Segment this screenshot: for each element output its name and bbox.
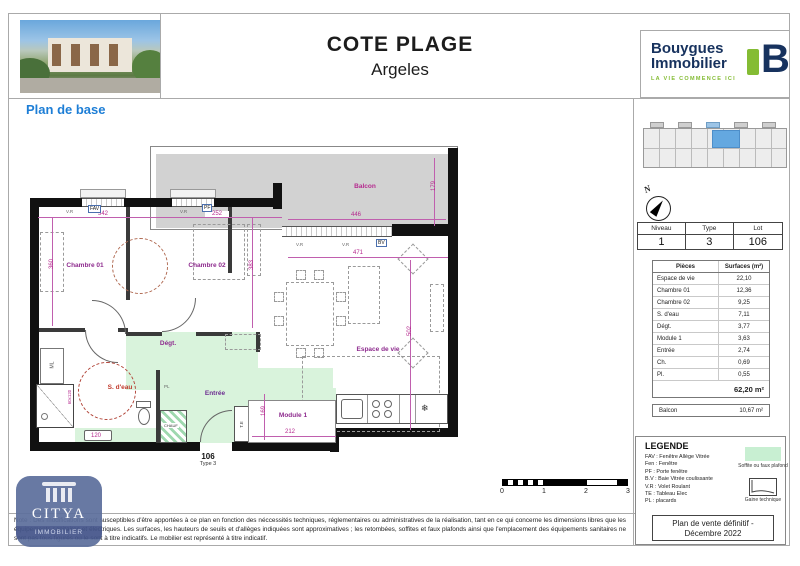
pf-tag: PF <box>202 204 212 212</box>
room-label-entree: Entrée <box>196 390 234 397</box>
table-row: Pl.0,55 <box>653 369 769 381</box>
column-bar <box>53 488 57 502</box>
unit-info-table: Niveau Type Lot 1 3 106 <box>637 222 783 250</box>
fav-tag: FAV <box>88 205 101 213</box>
cell-name: Entrée <box>653 345 719 356</box>
dim-360: 360 <box>49 254 55 274</box>
balcon-surface-row: Balcon 10,67 m² <box>652 404 770 417</box>
surfaces-table: Pièces Surfaces (m²) Espace de vie22,10 … <box>652 260 770 398</box>
bv-tag: BV <box>376 239 387 247</box>
dim-446: 446 <box>343 212 369 218</box>
dimline-212 <box>252 436 336 437</box>
chauf-label: CHAUF <box>163 423 179 428</box>
watermark-name: CITYA <box>16 506 102 523</box>
partition-bath-top-a <box>39 328 85 332</box>
project-photo <box>20 20 160 93</box>
dim-120: 120 <box>86 433 106 439</box>
furniture-bed-ch02 <box>193 224 245 280</box>
dimline-446 <box>288 219 446 220</box>
overview-balcony-bump <box>650 122 664 128</box>
lot-type: Type 3 <box>192 461 224 467</box>
value-niveau: 1 <box>638 235 686 250</box>
wall-bottom-mid <box>232 442 336 451</box>
furniture-chair <box>296 270 306 280</box>
col-niveau: Niveau <box>638 223 686 235</box>
dim-179: 179 <box>431 176 437 196</box>
scale-seg-dashed <box>503 480 545 485</box>
furniture-chair <box>336 316 346 326</box>
dim-shower: 60x120 <box>67 383 73 411</box>
surfaces-total: 62,20 m² <box>653 381 769 397</box>
column-bar <box>68 488 72 502</box>
column-bar <box>46 488 50 502</box>
citya-column-capital <box>42 482 76 486</box>
dim-502: 502 <box>407 321 413 341</box>
window-bv-bay <box>282 226 392 237</box>
surfaces-header-row: Pièces Surfaces (m²) <box>653 261 769 273</box>
legend-box: LEGENDE FAV : Fenêtre Allège Vitrée Fen … <box>635 436 786 545</box>
dim-471: 471 <box>345 250 371 256</box>
table-row: Chambre 0112,36 <box>653 285 769 297</box>
cell-name: Chambre 02 <box>653 297 719 308</box>
brand-bmark-green-bar <box>747 49 759 75</box>
stamp-line2: Décembre 2022 <box>653 529 773 539</box>
value-lot: 106 <box>733 235 782 250</box>
cell-value: 0,69 <box>719 360 769 366</box>
brand-line1: Bouygues <box>651 41 736 56</box>
footer-note: Note : Des modifications sont susceptibl… <box>14 516 626 543</box>
room-label-sdeau: S. d'eau <box>98 384 142 391</box>
furniture-chair <box>314 270 324 280</box>
col-type: Type <box>685 223 733 235</box>
plan-de-vente-page: COTE PLAGE Argeles Bouygues Immobilier L… <box>0 0 800 566</box>
value-type: 3 <box>685 235 733 250</box>
overview-balcony-bump <box>734 122 748 128</box>
brand-bmark: B <box>747 39 790 79</box>
table-row: Module 13,63 <box>653 333 769 345</box>
cell-name: Pl. <box>653 369 719 380</box>
kitchen-counter: ❄ <box>336 394 448 424</box>
legend-item: PL : placards <box>645 498 713 505</box>
legend-items: FAV : Fenêtre Allège Vitrée Fen : Fenêtr… <box>645 454 713 506</box>
furniture-placard-entree <box>225 334 261 350</box>
balcon-label: Balcon <box>659 408 677 414</box>
overview-balcony-bump <box>678 122 692 128</box>
dimline-502 <box>410 260 411 430</box>
column-bar <box>61 488 65 502</box>
furniture-sideboard <box>430 284 444 332</box>
table-row: Dégt.3,77 <box>653 321 769 333</box>
scale-bar <box>502 479 628 486</box>
watermark-subtitle: IMMOBILIER <box>16 526 102 539</box>
lot-number: 106 <box>192 452 224 461</box>
brand-wordmark: Bouygues Immobilier LA VIE COMMENCE ICI <box>651 41 736 82</box>
room-label-chambre02: Chambre 02 <box>185 262 229 269</box>
cell-value: 12,36 <box>719 288 769 294</box>
scale-tick: 2 <box>581 488 591 495</box>
photo-building-windows <box>52 44 128 66</box>
vr-tag: V.R <box>180 209 187 214</box>
scale-tick: 1 <box>539 488 549 495</box>
legend-item: B.V : Baie Vitrée coulissante <box>645 476 713 483</box>
balcon-value: 10,67 m² <box>739 408 763 414</box>
col-lot: Lot <box>733 223 782 235</box>
legend-soffite-caption: Soffite ou faux plafond <box>737 464 789 470</box>
legend-item: TE : Tableau Elec <box>645 491 713 498</box>
furniture-chair <box>336 292 346 302</box>
electrical-panel-label: T.E <box>239 421 244 428</box>
accessibility-circle <box>78 362 136 420</box>
furniture-chair <box>274 316 284 326</box>
room-label-balcon: Balcon <box>343 183 387 190</box>
cell-value: 2,74 <box>719 348 769 354</box>
cell-value: 0,55 <box>719 372 769 378</box>
unit-info-header-row: Niveau Type Lot <box>638 223 783 235</box>
legend-item: PF : Porte fenêtre <box>645 469 713 476</box>
kitchen-divider <box>399 395 400 423</box>
kitchen-sink <box>341 399 363 419</box>
table-row: S. d'eau7,11 <box>653 309 769 321</box>
room-label-espace: Espace de vie <box>336 346 420 353</box>
washer-closet: ML <box>40 348 64 384</box>
furniture-sofa <box>348 266 380 324</box>
building-overview-plan <box>643 128 787 168</box>
vr-tag: V.R <box>342 242 349 247</box>
wall-top-step <box>273 183 282 209</box>
shower-drain <box>41 413 48 420</box>
cell-name: Ch. <box>653 357 719 368</box>
stamp-line1: Plan de vente définitif - <box>653 519 773 529</box>
cell-name: Espace de vie <box>653 273 719 284</box>
legend-gaine-caption: Gaine technique <box>737 498 789 504</box>
furniture-dining-table <box>286 282 334 346</box>
placard-tag: PL <box>164 384 170 389</box>
legend-item: V.R : Volet Roulant <box>645 484 713 491</box>
dimline-252 <box>168 217 282 218</box>
cell-name: Module 1 <box>653 333 719 344</box>
table-row: Entrée2,74 <box>653 345 769 357</box>
partition-ch02-bottom-a <box>126 332 162 336</box>
cell-name: Chambre 01 <box>653 285 719 296</box>
overview-balcony-bump-highlight <box>706 122 720 128</box>
scale-tick: 0 <box>497 488 507 495</box>
footer-divider <box>8 513 635 514</box>
surfaces-col1: Pièces <box>653 261 719 272</box>
kitchen-divider <box>367 395 368 423</box>
kitchen-divider <box>415 395 416 423</box>
furniture-circle-ch01 <box>112 238 168 294</box>
furniture-chair <box>274 292 284 302</box>
dimline-342 <box>38 217 168 218</box>
cell-value: 9,25 <box>719 300 769 306</box>
room-label-degt: Dégt. <box>150 340 186 347</box>
brand-tagline: LA VIE COMMENCE ICI <box>651 76 736 82</box>
vr-tag: V.R <box>296 242 303 247</box>
room-label-chambre01: Chambre 01 <box>63 262 107 269</box>
wall-balcony-right <box>448 148 458 236</box>
overview-balcony-bump <box>762 122 776 128</box>
washer-label: ML <box>49 362 55 369</box>
section-title: Plan de base <box>26 102 105 117</box>
stove-burner <box>372 410 380 418</box>
room-label-module1: Module 1 <box>263 412 323 419</box>
legend-title: LEGENDE <box>645 441 689 451</box>
wall-right <box>448 236 458 437</box>
table-row: Espace de vie22,10 <box>653 273 769 285</box>
cell-name: Dégt. <box>653 321 719 332</box>
citya-watermark: CITYA IMMOBILIER <box>16 476 102 547</box>
page-subtitle: Argeles <box>160 60 640 80</box>
wall-bottom-left <box>30 442 200 451</box>
stove-burner <box>372 400 380 408</box>
cell-name: S. d'eau <box>653 309 719 320</box>
scale-seg-white <box>587 480 617 485</box>
window-sill-pf <box>170 189 216 198</box>
wall-top <box>30 198 282 207</box>
scale-tick: 3 <box>623 488 633 495</box>
dimline-471 <box>288 257 448 258</box>
chauf-duct: CHAUF <box>160 410 187 443</box>
scale-seg-end <box>617 480 627 485</box>
cell-value: 3,77 <box>719 324 769 330</box>
legend-soffite-swatch <box>745 447 781 461</box>
kitchen-stove <box>371 399 395 419</box>
overview-mid-line <box>644 148 786 149</box>
compass-needle <box>650 198 666 217</box>
header-divider <box>8 98 790 99</box>
wall-living-top <box>392 224 448 236</box>
brand-bmark-b: B <box>761 39 790 79</box>
brand-line2: Immobilier <box>651 56 736 71</box>
table-row: Ch.0,69 <box>653 357 769 369</box>
toilet-tank <box>136 401 151 408</box>
page-title: COTE PLAGE <box>160 33 640 57</box>
brand-logo-cell: Bouygues Immobilier LA VIE COMMENCE ICI … <box>640 30 790 98</box>
overview-highlighted-unit <box>712 130 740 148</box>
compass-icon <box>646 196 671 221</box>
fridge-snowflake-icon: ❄ <box>421 403 429 414</box>
unit-info-value-row: 1 3 106 <box>638 235 783 250</box>
window-sill-fav <box>80 189 126 198</box>
surfaces-col2: Surfaces (m²) <box>719 264 769 270</box>
stove-burner <box>384 400 392 408</box>
vr-tag: V.R <box>66 209 73 214</box>
cell-value: 7,11 <box>719 312 769 318</box>
sidebar-divider <box>633 98 634 546</box>
cell-value: 3,63 <box>719 336 769 342</box>
dim-383: 383 <box>249 255 255 275</box>
plan-stamp-box: Plan de vente définitif - Décembre 2022 <box>652 515 774 541</box>
citya-column-icon <box>46 488 72 502</box>
toilet-bowl <box>138 408 150 425</box>
electrical-panel: T.E <box>234 406 249 442</box>
dim-212: 212 <box>278 429 302 435</box>
scale-seg-black <box>545 480 587 485</box>
cell-value: 22,10 <box>719 276 769 282</box>
stove-burner <box>384 410 392 418</box>
table-row: Chambre 029,25 <box>653 297 769 309</box>
photo-road <box>20 78 160 93</box>
legend-item: Fen : Fenêtre <box>645 461 713 468</box>
title-block: COTE PLAGE Argeles <box>160 33 640 80</box>
legend-item: FAV : Fenêtre Allège Vitrée <box>645 454 713 461</box>
